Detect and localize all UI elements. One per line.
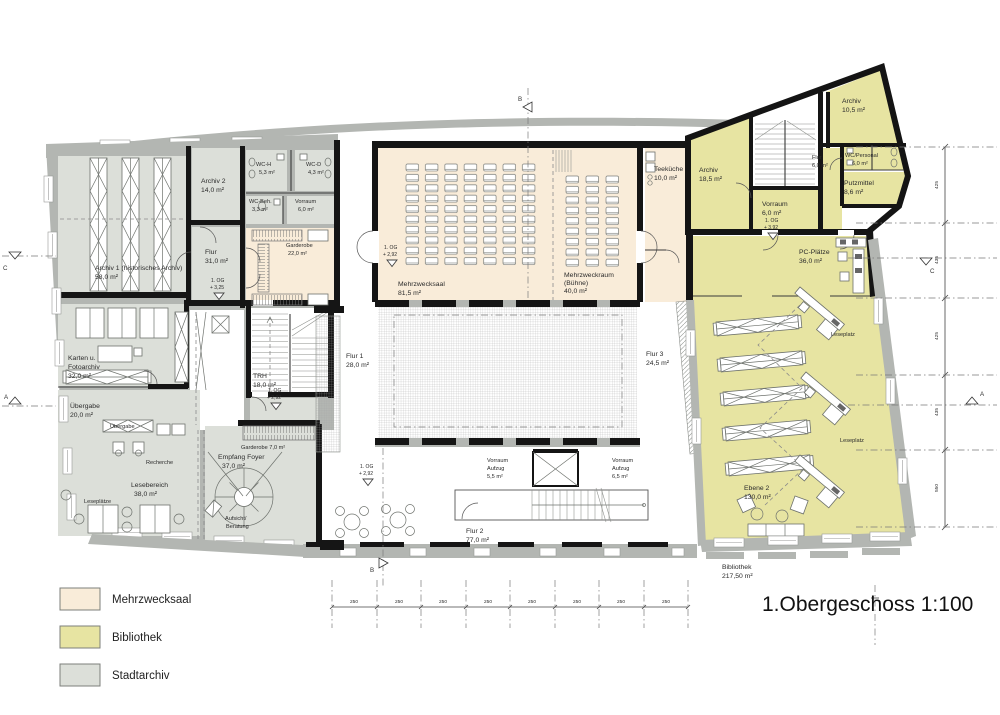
label-flur-bib-area: 6,0 m² <box>812 163 828 169</box>
label-bibliothek-area: 217,50 m² <box>722 573 753 580</box>
label-flur2: Flur 2 <box>466 528 484 535</box>
section-c-right: C <box>930 268 935 275</box>
label-ebene2: Ebene 2 <box>744 485 770 492</box>
label-wcbeh-area: 3,3 m² <box>252 207 268 213</box>
dim-bottom-2: 250 <box>395 599 403 605</box>
label-empfang: Empfang Foyer <box>218 454 265 461</box>
anno-uebergabe-desk: Übergabe <box>110 423 135 430</box>
section-b-top: B <box>518 96 522 103</box>
label-wcd-area: 4,3 m² <box>308 170 324 176</box>
label-va2: Vorraum <box>612 458 633 464</box>
label-empfang-area: 37,0 m² <box>222 463 246 470</box>
label-mehrzweckraum-2: (Bühne) <box>564 280 588 287</box>
label-va2-area: 6,5 m² <box>612 474 628 480</box>
label-putzmittel: Putzmittel <box>844 180 874 187</box>
dim-right-2: 435 <box>934 256 940 264</box>
dim-bottom-1: 250 <box>350 599 358 605</box>
label-archiv2: Archiv 2 <box>201 178 226 185</box>
elevator <box>533 449 578 486</box>
garderobe-foyer-rack <box>243 426 315 440</box>
level-flur-value: + 3,25 <box>210 285 224 291</box>
section-a-right: A <box>980 391 985 398</box>
label-mehrzwecksaal: Mehrzwecksaal <box>398 281 445 288</box>
label-va2-2: Aufzug <box>612 466 629 472</box>
section-a-left: A <box>4 394 9 401</box>
label-wch: WC-H <box>256 162 271 168</box>
label-wcd: WC-D <box>306 162 321 168</box>
label-flur3: Flur 3 <box>646 351 664 358</box>
dim-bottom-8: 250 <box>662 599 670 605</box>
floor-plan-drawing: 1. OG + 3,25 1. OG + 2,92 1. OG + 2,92 1… <box>0 0 1000 715</box>
dim-right-1: 425 <box>934 181 940 189</box>
label-pc-plaetze-area: 36,0 m² <box>799 258 823 265</box>
label-vorraum-bib-area: 6,0 m² <box>762 210 782 217</box>
label-archiv1: Archiv 1 (historisches Archiv) <box>95 265 182 272</box>
bibliothek-building <box>686 67 916 559</box>
legend-label-mehrzwecksaal: Mehrzwecksaal <box>112 594 191 606</box>
label-vorraum-wc-area: 6,0 m² <box>298 207 314 213</box>
label-pc-plaetze: PC-Plätze <box>799 249 830 256</box>
level-saal-floor: 1. OG <box>384 245 397 251</box>
dim-bottom-3: 250 <box>439 599 447 605</box>
level-flur2-floor: 1. OG <box>360 464 373 470</box>
label-va1: Vorraum <box>487 458 508 464</box>
audience-seating <box>405 163 541 267</box>
dim-bottom-5: 250 <box>528 599 536 605</box>
dim-right-5: 550 <box>934 484 940 492</box>
stage-seating <box>565 175 625 269</box>
section-b-bottom: B <box>370 567 374 574</box>
label-archiv1-area: 58,0 m² <box>95 274 119 281</box>
anno-leseplatz-1: Leseplatz <box>831 332 855 338</box>
room-flur-archiv <box>192 227 240 304</box>
legend-label-bibliothek: Bibliothek <box>112 632 162 644</box>
label-garderobe-foyer: Garderobe 7,0 m² <box>241 445 285 451</box>
section-c-left: C <box>3 265 8 272</box>
legend: Mehrzwecksaal Bibliothek Stadtarchiv <box>60 588 191 686</box>
label-flur3-area: 24,5 m² <box>646 360 670 367</box>
level-vorraum-floor: 1. OG <box>765 218 778 224</box>
void-luftraum <box>378 307 637 438</box>
legend-label-stadtarchiv: Stadtarchiv <box>112 670 170 682</box>
room-archiv2 <box>192 148 240 222</box>
label-karten-area: 32,0 m² <box>68 373 92 380</box>
flur2-tables <box>336 505 415 538</box>
dim-bottom-7: 250 <box>617 599 625 605</box>
floor-plan-sheet: 1. OG + 3,25 1. OG + 2,92 1. OG + 2,92 1… <box>0 0 1000 715</box>
label-flur1-area: 28,0 m² <box>346 362 370 369</box>
label-uebergabe-area: 20,0 m² <box>70 412 94 419</box>
label-trh: TRH <box>253 373 267 380</box>
anno-recherche: Recherche <box>146 460 173 466</box>
label-flur-archiv: Flur <box>205 249 217 256</box>
room-empfang <box>205 426 316 546</box>
label-lesebereich: Lesebereich <box>131 482 168 489</box>
label-mehrzweckraum: Mehrzweckraum <box>564 272 614 279</box>
label-archiv2-area: 14,0 m² <box>201 187 225 194</box>
label-va1-2: Aufzug <box>487 466 504 472</box>
anno-aufsicht-2: Beratung <box>226 524 249 530</box>
label-mehrzwecksaal-area: 81,5 m² <box>398 290 422 297</box>
anno-aufsicht-1: Aufsicht/ <box>225 516 247 522</box>
legend-swatch-bibliothek <box>60 626 100 648</box>
label-bibliothek: Bibliothek <box>722 564 752 571</box>
level-flur2-value: + 2,92 <box>359 471 373 477</box>
hall-south-wall <box>375 300 640 307</box>
legend-swatch-mehrzwecksaal <box>60 588 100 610</box>
label-wc-personal: WC/Personal <box>845 153 878 159</box>
label-va1-area: 5,5 m² <box>487 474 503 480</box>
sheet-title: 1.Obergeschoss 1:100 <box>762 593 973 616</box>
label-teekueche-area: 10,0 m² <box>654 175 678 182</box>
label-vorraum-bib: Vorraum <box>762 201 788 208</box>
label-wch-area: 5,3 m² <box>259 170 275 176</box>
dim-right-4: 435 <box>934 408 940 416</box>
label-flur-archiv-area: 31,0 m² <box>205 258 229 265</box>
anno-leseplaetze: Leseplätze <box>84 499 111 505</box>
label-archiv-bib2: Archiv <box>842 98 861 105</box>
label-flur2-area: 77,0 m² <box>466 537 490 544</box>
dim-bottom-4: 250 <box>484 599 492 605</box>
label-mehrzweckraum-area: 40,0 m² <box>564 288 588 295</box>
void-south-wall <box>375 438 640 447</box>
label-putzmittel-area: 8,6 m² <box>844 189 864 196</box>
level-saal-value: + 2,92 <box>383 252 397 258</box>
dim-right-3: 425 <box>934 332 940 340</box>
label-trh-area: 18,0 m² <box>253 382 277 389</box>
level-flur-floor: 1. OG <box>211 278 224 284</box>
flur2-stair <box>455 488 648 522</box>
label-flur1: Flur 1 <box>346 353 364 360</box>
shaft-west <box>316 316 340 452</box>
label-teekueche: Teeküche <box>654 166 683 173</box>
label-ebene2-area: 130,0 m² <box>744 494 772 501</box>
dim-bottom-6: 250 <box>573 599 581 605</box>
label-uebergabe: Übergabe <box>70 402 100 410</box>
central-south-facade <box>303 540 697 558</box>
room-vorraum-bib <box>753 188 818 230</box>
label-karten-2: Fotoarchiv <box>68 364 100 371</box>
anno-leseplatz-2: Leseplatz <box>840 438 864 444</box>
label-archiv-bib2-area: 10,5 m² <box>842 107 866 114</box>
label-archiv-bib: Archiv <box>699 167 718 174</box>
label-flur-bib: Flur <box>812 155 822 161</box>
label-wc-personal-area: 6,0 m² <box>852 161 868 167</box>
level-vorraum-value: + 3,92 <box>764 225 778 231</box>
label-lesebereich-area: 38,0 m² <box>134 491 158 498</box>
level-trh-value: + 2,92 <box>267 395 281 401</box>
label-garderobe: Garderobe <box>286 243 313 249</box>
label-vorraum-wc: Vorraum <box>295 199 316 205</box>
label-archiv-bib-area: 18,5 m² <box>699 176 723 183</box>
label-garderobe-area: 22,0 m² <box>288 251 307 257</box>
label-karten: Karten u. <box>68 355 96 362</box>
label-wcbeh: WC-Beh. <box>249 199 272 205</box>
legend-swatch-stadtarchiv <box>60 664 100 686</box>
mehrzwecksaal-wing <box>303 141 708 558</box>
